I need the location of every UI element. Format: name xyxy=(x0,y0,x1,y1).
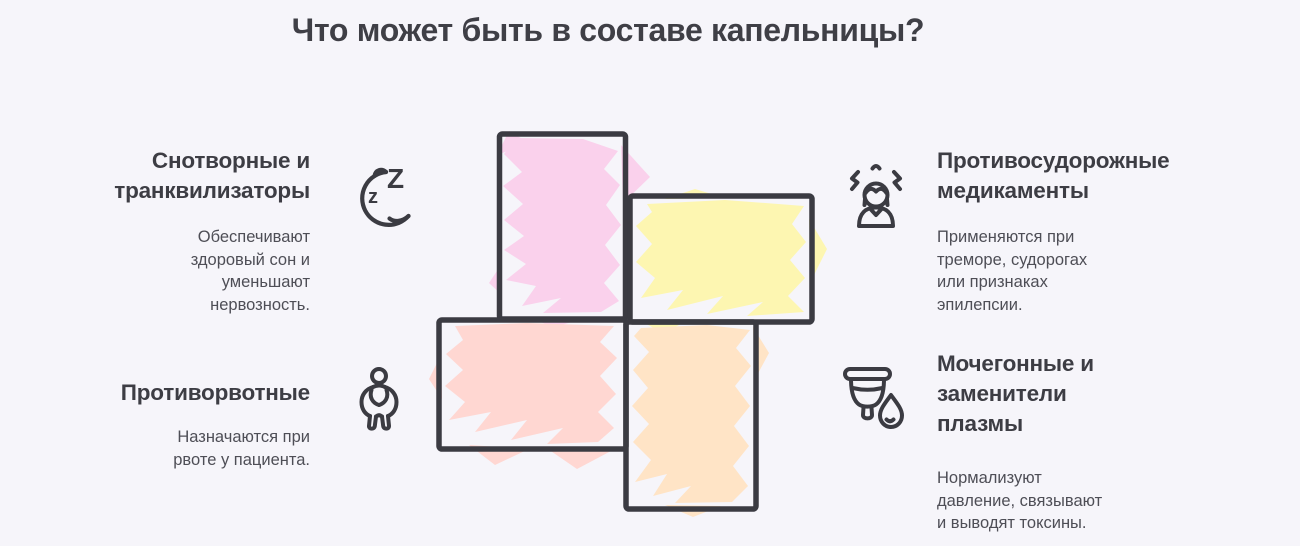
stress-strokes xyxy=(852,166,900,226)
section-diuretics-plasma: Мочегонные и заменители плазмы Нормализу… xyxy=(937,349,1217,535)
nauseous-person-icon xyxy=(357,366,405,436)
section-antiemetics: Противорвотные Назначаются при рвоте у п… xyxy=(60,378,310,471)
section-description: Нормализуют давление, связывают и выводя… xyxy=(937,467,1217,535)
stressed-person-icon xyxy=(845,162,909,234)
section-sleep-tranquilizers: Снотворные и транквилизаторы Обеспечиваю… xyxy=(60,146,310,316)
section-anticonvulsants: Противосудорожные медикаменты Применяютс… xyxy=(937,146,1217,316)
z-small-glyph: z xyxy=(368,186,378,208)
section-description: Применяются при треморе, судорогах или п… xyxy=(937,226,1217,316)
block-orange-fill xyxy=(632,325,769,517)
cup-strokes xyxy=(845,369,902,427)
section-heading: Противосудорожные медикаменты xyxy=(937,146,1217,206)
block-yellow-fill xyxy=(636,189,827,333)
section-description: Обеспечивают здоровый сон и уменьшают не… xyxy=(60,226,310,316)
infographic-canvas: Что может быть в составе капельницы? Сно… xyxy=(0,0,1300,546)
cup-and-drop-icon xyxy=(840,362,910,434)
section-heading: Мочегонные и заменители плазмы xyxy=(937,349,1217,439)
section-heading: Снотворные и транквилизаторы xyxy=(60,146,310,206)
page-title: Что может быть в составе капельницы? xyxy=(0,12,1216,49)
section-heading: Противорвотные xyxy=(60,378,310,408)
cross-diagram xyxy=(425,115,835,525)
section-description: Назначаются при рвоте у пациента. xyxy=(60,426,310,471)
z-big-glyph: Z xyxy=(387,163,404,194)
sleeping-moon-icon: Z z xyxy=(346,158,428,238)
person-strokes xyxy=(362,369,397,429)
